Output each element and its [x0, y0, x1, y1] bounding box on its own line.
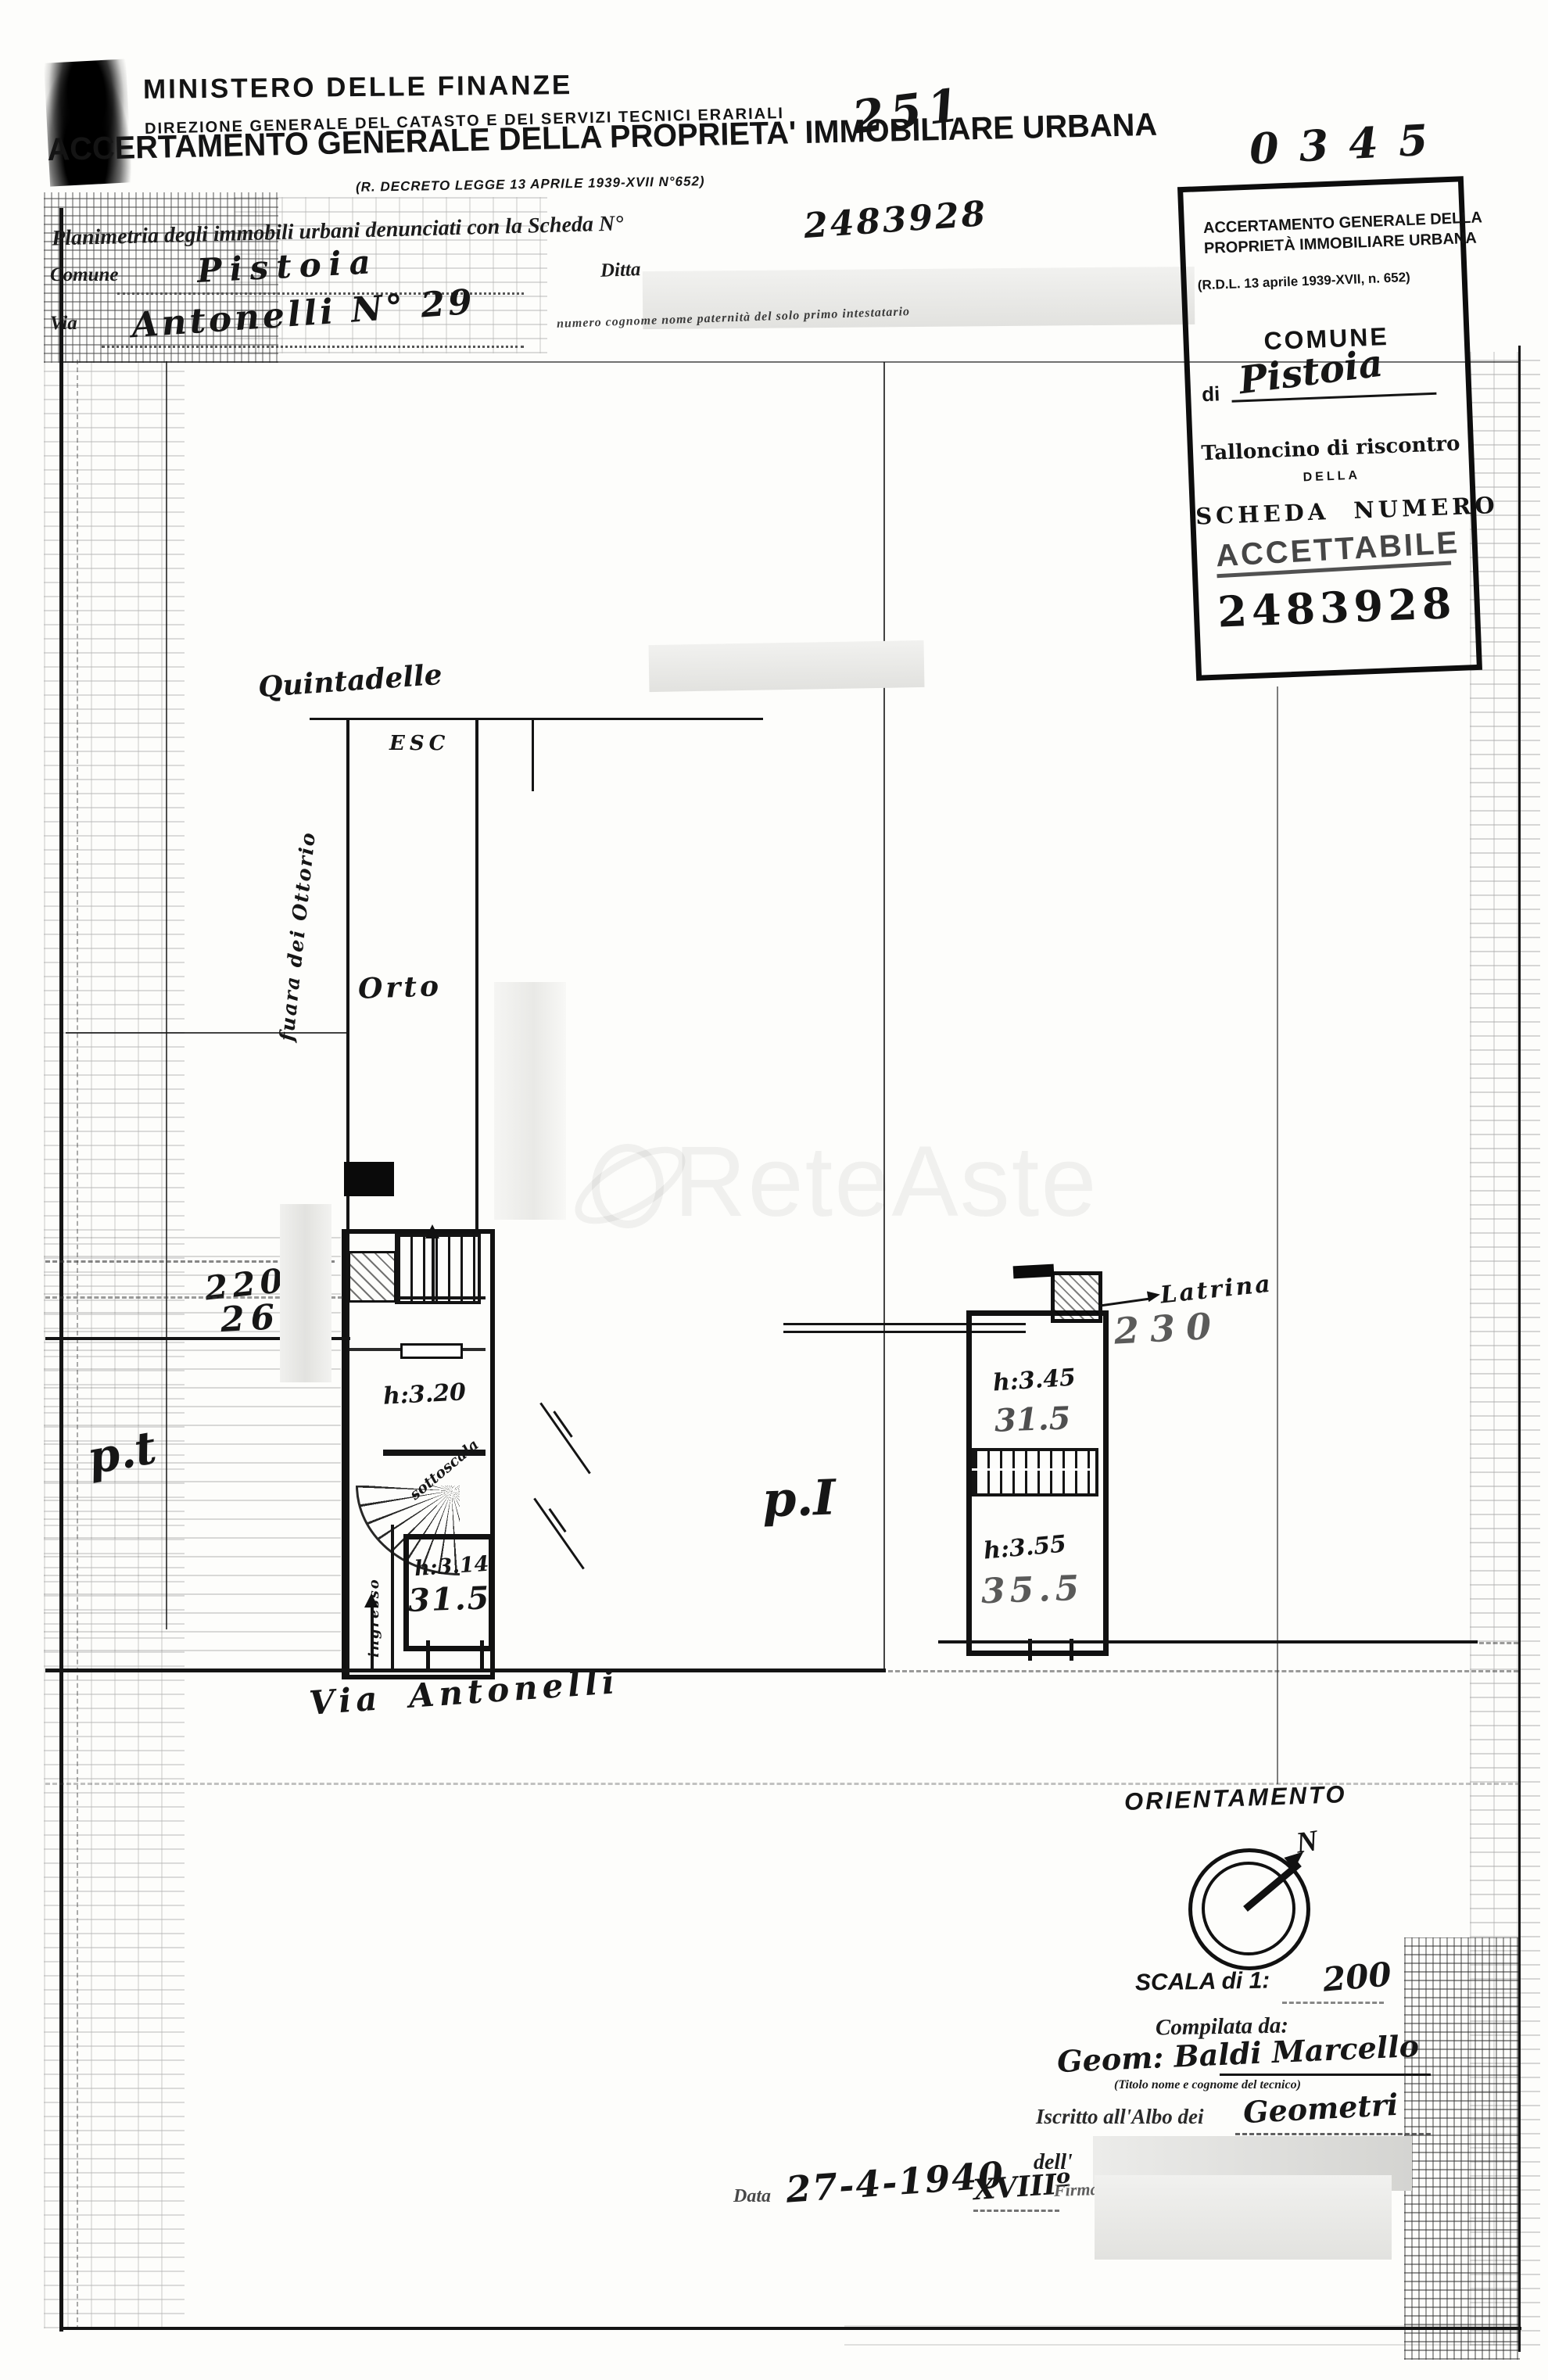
albo-value-handwritten: Geometri: [1242, 2087, 1399, 2130]
orientamento-label: ORIENTAMENTO: [1123, 1780, 1347, 1816]
document-page: ReteAste MINISTERO DELLE FINANZE DIREZIO…: [0, 0, 1548, 2380]
esc-bay-wall: [532, 719, 534, 791]
side-street-label-handwritten: fuara dei Ottorio: [275, 830, 320, 1042]
decree-reference: (R. DECRETO LEGGE 13 APRILE 1939-XVII N°…: [356, 174, 705, 195]
staircase-gf: [395, 1234, 481, 1304]
dimension-230-label: 230: [1113, 1304, 1224, 1352]
tecnico-underline: [1220, 2074, 1431, 2076]
scala-underline: [1282, 2002, 1384, 2004]
scheda-number-handwritten: 2483928: [803, 194, 989, 246]
latrina-arrow-head: [1147, 1289, 1161, 1303]
redaction-band: [494, 982, 566, 1220]
redaction-box: [649, 640, 925, 692]
stamp-talloncino-line: Talloncino di riscontro: [1193, 432, 1469, 465]
stair-arrow-shaft: [432, 1238, 435, 1304]
stamp-scheda-number: 2483928: [1199, 577, 1475, 637]
redaction-black-box: [344, 1162, 394, 1196]
street-line-f1: [938, 1640, 1478, 1643]
scan-noise-block: [1404, 1937, 1520, 2360]
parcel-divider-line: [883, 362, 885, 1672]
tecnico-name-handwritten: Geom: Baldi Marcello: [1056, 2028, 1420, 2079]
comune-value-handwritten: Pistoia: [196, 242, 379, 290]
boundary-pen-stroke: [533, 1498, 585, 1570]
comune-label: Comune: [50, 264, 119, 286]
corridor-wall: [391, 1525, 394, 1670]
north-label: N: [1294, 1823, 1320, 1860]
street-dash-line: [1479, 1642, 1518, 1644]
parcel-top-wall: [310, 718, 763, 720]
entry-arrow-shaft: [371, 1606, 374, 1669]
stamp-decree: (R.D.L. 13 aprile 1939-XVII, n. 652): [1197, 270, 1410, 293]
room-gf2-area-label: 31.5: [407, 1579, 491, 1619]
room-gf-height-label: h:3.20: [382, 1378, 467, 1410]
page-border-left-dashes: [77, 360, 78, 2330]
floor-f1-label-handwritten: p.I: [761, 1468, 837, 1528]
firma-label: Firma: [1054, 2179, 1099, 2201]
ministry-title: MINISTERO DELLE FINANZE: [143, 70, 573, 106]
tecnico-note: (Titolo nome e cognome del tecnico): [1114, 2078, 1301, 2092]
albo-text: Iscritto all'Albo dei: [1036, 2105, 1204, 2129]
via-value-handwritten: Antonelli N° 29: [131, 282, 477, 346]
parcel-boundary-line: [166, 361, 167, 1629]
latrina-label-handwritten: Latrina: [1159, 1271, 1274, 1310]
talloncino-stamp-box: ACCERTAMENTO GENERALE DELLA PROPRIETÀ IM…: [1177, 176, 1482, 681]
entry-arrow-head: [364, 1593, 378, 1608]
room-f1a-height-label: h:3.45: [992, 1364, 1077, 1396]
stamp-di-label: di: [1202, 382, 1220, 407]
scala-value-handwritten: 200: [1321, 1955, 1393, 1998]
parcel-top-label-handwritten: Quintadelle: [257, 658, 443, 704]
floor-gf-label-handwritten: p.t: [84, 1421, 160, 1485]
scan-noise-left-margin: [44, 361, 185, 2328]
esc-label-handwritten: ESC: [389, 732, 450, 755]
partition-wall: [395, 1296, 486, 1299]
watermark-text: ReteAste: [674, 1124, 1098, 1239]
stamp-handwritten-number: 0345: [1248, 113, 1449, 174]
stamp-scheda-numero-label: SCHEDA NUMERO: [1195, 493, 1471, 529]
ditta-label: Ditta: [600, 259, 641, 282]
albo-underline: [1235, 2133, 1431, 2135]
parcel-east-wall: [475, 719, 478, 1237]
room-f1b-area-label: 35.5: [980, 1568, 1084, 1612]
scan-noise-block: [844, 2308, 1517, 2357]
stair-arrow-head: [425, 1224, 439, 1238]
room-gf2-height-label: h:3.14: [414, 1552, 489, 1582]
latrina-arrow-shaft: [1098, 1297, 1152, 1306]
street-line: [45, 1669, 886, 1672]
staircase-f1: [972, 1448, 1098, 1496]
stair-side-closet: [348, 1251, 396, 1303]
window-symbol: [400, 1343, 463, 1359]
via-label: Via: [50, 313, 77, 335]
page-border-right: [1518, 346, 1521, 2352]
page-border-left: [59, 208, 63, 2332]
orto-label-handwritten: Orto: [357, 970, 442, 1005]
data-label: Data: [733, 2186, 771, 2207]
parcel-cross-line: [66, 1032, 349, 1034]
latrina-closet: [1051, 1271, 1102, 1323]
staircase-rail: [972, 1468, 1092, 1471]
room-f1a-area-label: 31.5: [994, 1400, 1071, 1439]
parcel-divider-line: [1277, 686, 1278, 1784]
page-border-bottom: [59, 2327, 1521, 2330]
street-dash-line: [888, 1670, 1518, 1672]
boundary-pen-stroke: [539, 1403, 591, 1475]
accettabile-stamp: ACCETTABILE: [1215, 526, 1451, 579]
ingresso-label-handwritten: ingresso: [366, 1578, 382, 1658]
era-underline: [973, 2210, 1059, 2212]
scala-label: SCALA di 1:: [1135, 1967, 1270, 1996]
door-opening: [426, 1640, 484, 1669]
firma-redaction-box: [1095, 2175, 1392, 2260]
redaction-band: [280, 1204, 331, 1382]
stamp-della-label: DELLA: [1194, 464, 1469, 489]
wall-blob: [1013, 1264, 1055, 1279]
via-underline: [102, 346, 524, 348]
